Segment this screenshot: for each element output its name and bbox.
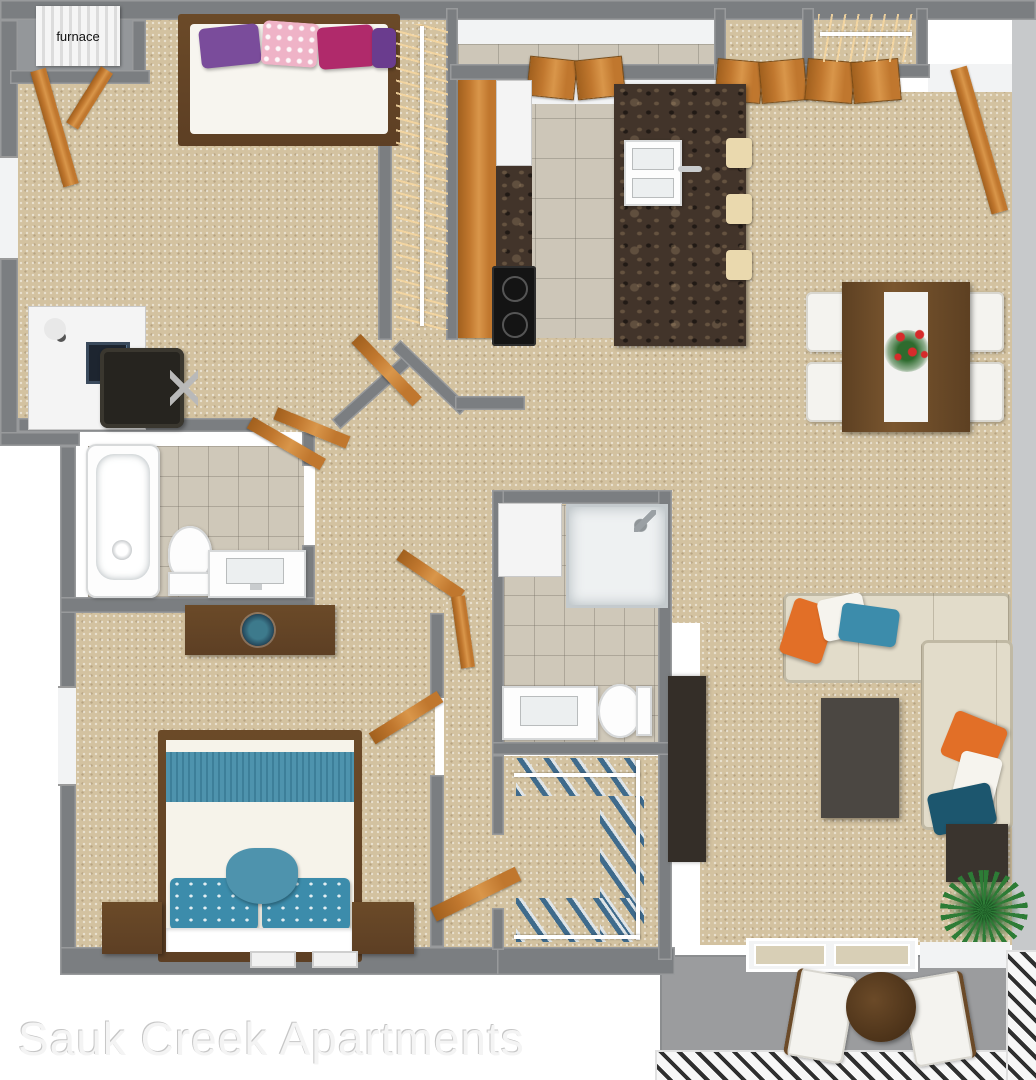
stove-burner-2 [502,312,528,338]
wall-left-step [0,432,80,446]
furnace-unit: furnace [36,6,120,66]
closet-b-bifold-right [850,58,901,104]
shower-head [634,510,656,532]
bathtub-basin [96,454,150,580]
vanity1-sink [226,558,284,584]
bed2-sheet-fold [166,928,354,952]
wic-clothes-top [516,758,638,796]
refrigerator [496,80,532,166]
stove-burner-1 [502,276,528,302]
bar-stool-1 [726,138,752,168]
bar-stool-2 [726,194,752,224]
closet-b-hangers [818,14,914,62]
patio-table [846,972,916,1042]
vanity1-faucet [250,584,262,590]
bed1-pillow-purple [198,23,262,69]
watermark-text: Sauk Creek Apartments [18,1012,525,1066]
bed1-pillow-magenta [317,24,376,70]
wall-wic-left-lower [492,908,504,950]
sofa-pillow-teal-1 [838,602,901,648]
wall-right [1012,20,1036,950]
bed2-duvet-teal-band [166,752,354,802]
bedroom1-window [0,156,18,260]
closet-b-rod [820,32,912,36]
bedroom2-window [58,686,76,786]
bar-stool-3 [726,250,752,280]
dresser-decor [242,614,274,646]
wall-bottom-center [497,947,675,975]
island-sink-basin-2 [632,178,674,198]
closet-a-bifold-right [758,58,807,104]
wall-wic-left-upper [492,755,504,835]
closet1-rod [420,26,424,326]
floor-plan: furnace [0,0,1036,1080]
wic-rod-right [636,760,640,940]
potted-plant [940,870,1028,950]
kitchen-cabinet-run [458,80,496,338]
nightstand-right [352,902,414,954]
balcony-railing-right [1006,950,1036,1080]
laundry-bifold-left [526,56,578,101]
balcony-railing-bottom [655,1050,1036,1080]
toilet2-tank [636,686,652,736]
bathtub-faucet [112,540,132,560]
kitchen-counter [496,166,532,266]
wall-bedroom2-right-upper [430,613,444,698]
nightstand-left [102,902,162,954]
bed1-pillow-purple2 [372,28,396,68]
toilet1-tank [168,572,212,596]
furnace-label: furnace [56,29,99,44]
wic-rod-top [514,773,640,777]
floor-vent-1 [250,951,296,968]
balcony-window [920,942,1010,968]
vanity2-sink [520,696,578,726]
sliding-door-glass-2 [834,944,910,966]
desk-lamp [44,318,66,340]
wall-bath2-wic-divider [492,742,672,755]
floor-vent-2 [312,951,358,968]
wall-bath2-top [492,490,672,504]
wic-rod-bottom [514,935,640,939]
island-faucet [678,166,702,172]
desk-chair-base [170,360,198,416]
media-console [668,676,706,862]
bed1-pillow-pink [261,20,320,68]
sliding-door-glass-1 [754,944,826,966]
island-sink-basin-1 [632,148,674,170]
linen-closet-box [498,503,562,577]
wall-kitchen-south [455,396,525,410]
closet-b-bifold-left [804,58,855,104]
coffee-table [821,698,899,818]
bed2-throw-pillow [226,848,298,904]
dining-centerpiece-flowers [886,322,934,372]
